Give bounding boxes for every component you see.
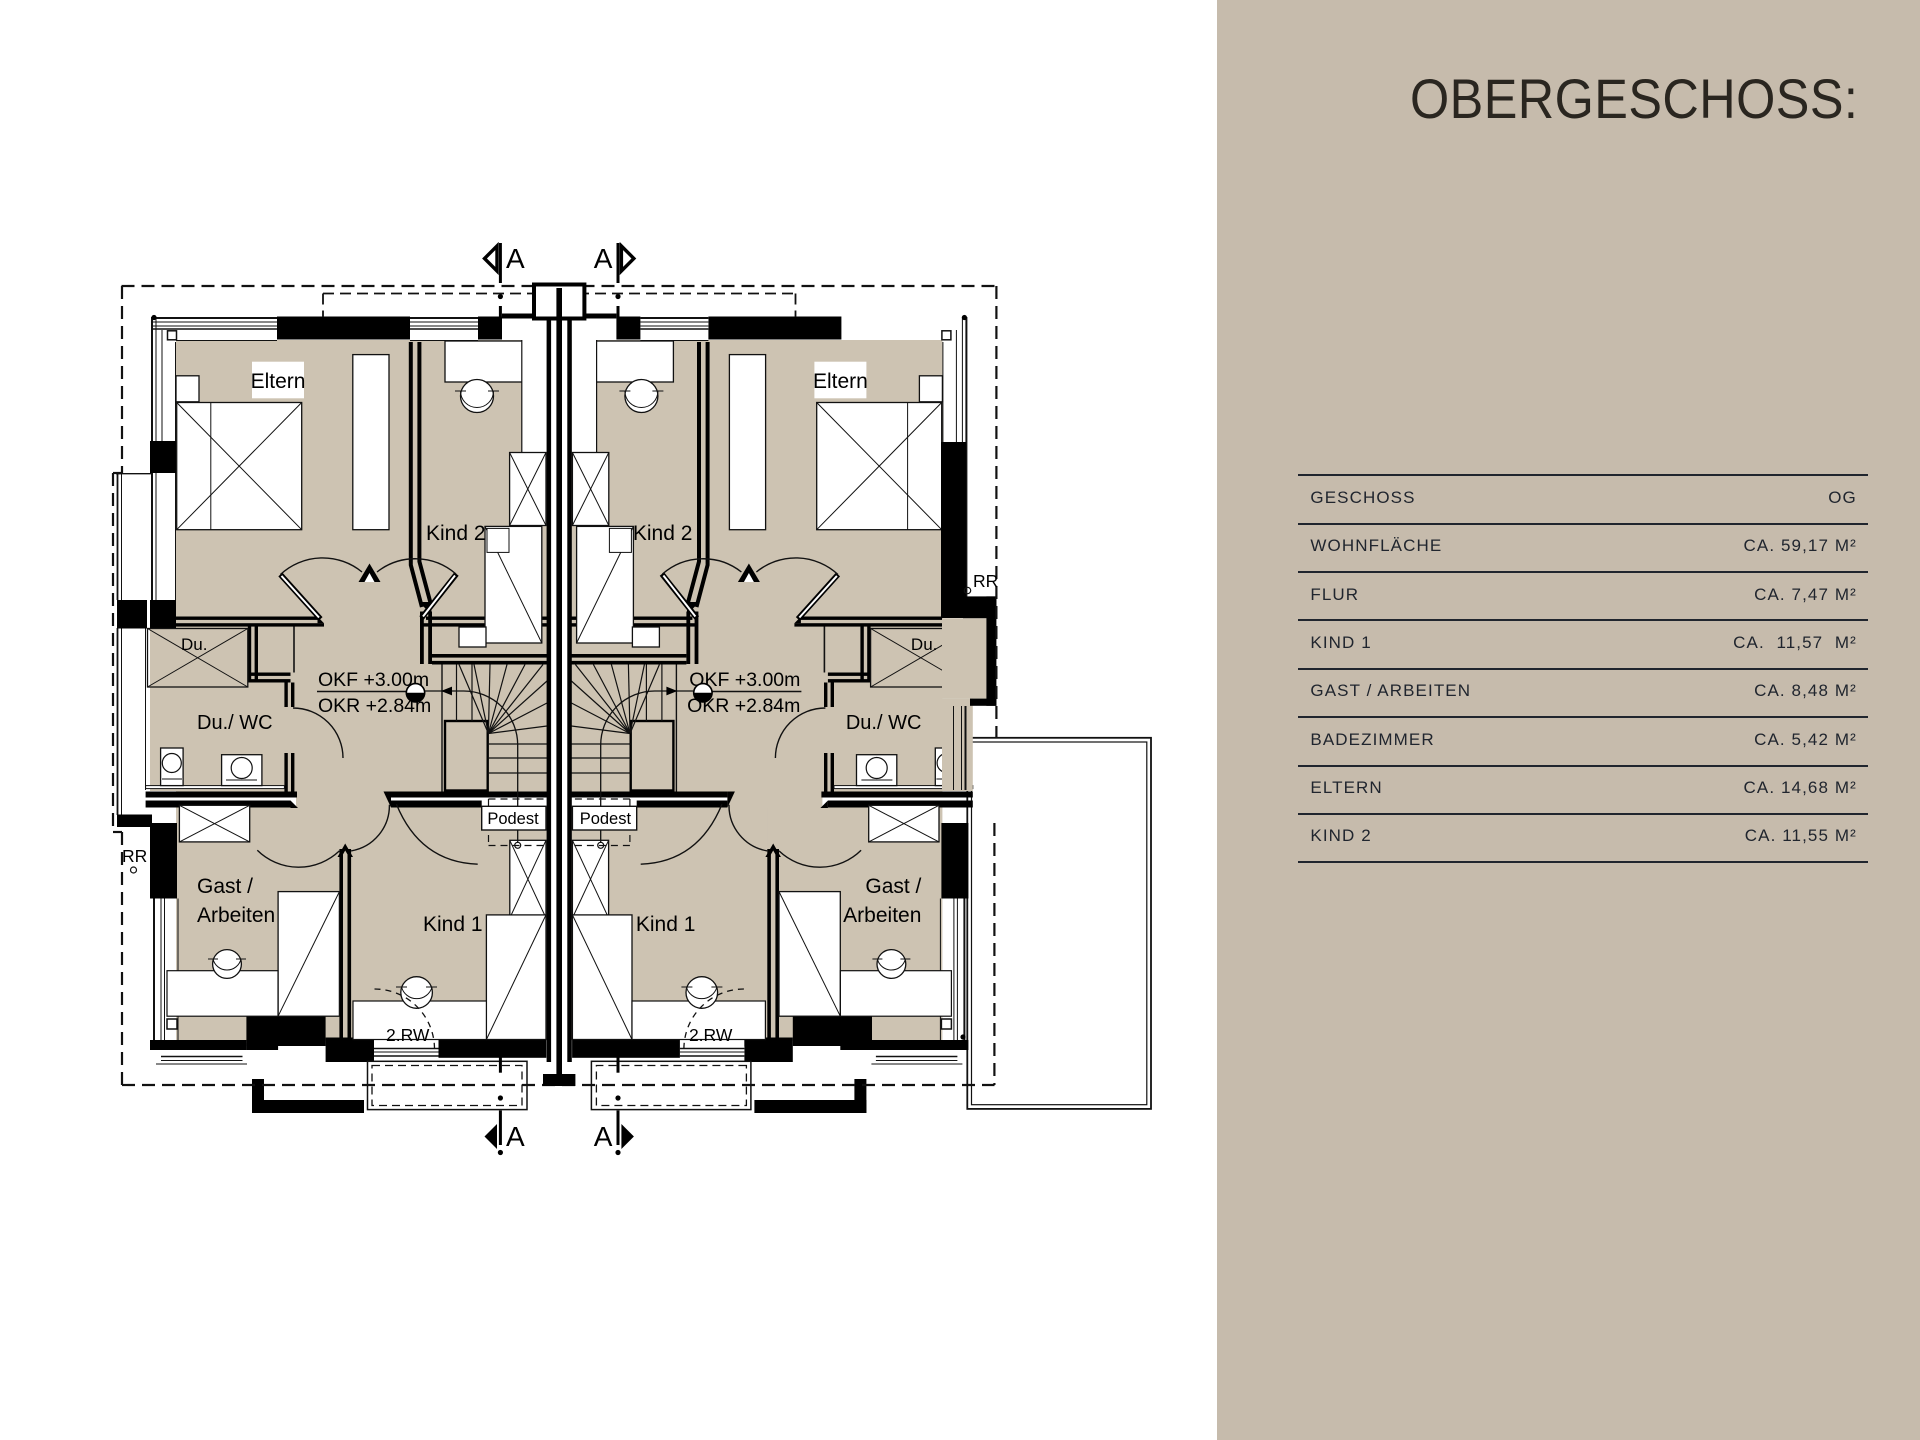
svg-text:Kind 1: Kind 1 xyxy=(423,913,483,936)
svg-text:Du.: Du. xyxy=(911,635,937,654)
svg-text:Podest: Podest xyxy=(580,810,632,828)
svg-text:A: A xyxy=(506,1121,525,1152)
svg-text:A: A xyxy=(594,1121,613,1152)
svg-text:Gast /: Gast / xyxy=(865,875,921,898)
svg-text:2.RW: 2.RW xyxy=(386,1025,430,1045)
svg-text:Eltern: Eltern xyxy=(813,370,868,393)
svg-text:2.RW: 2.RW xyxy=(689,1025,733,1045)
svg-text:Arbeiten: Arbeiten xyxy=(843,904,921,927)
svg-text:A: A xyxy=(594,243,613,274)
svg-text:Kind 2: Kind 2 xyxy=(426,522,486,545)
svg-text:RR: RR xyxy=(122,846,147,866)
svg-text:A: A xyxy=(506,243,525,274)
svg-text:Podest: Podest xyxy=(487,810,539,828)
svg-text:Du./ WC: Du./ WC xyxy=(846,712,922,734)
svg-text:Du./ WC: Du./ WC xyxy=(197,712,273,734)
svg-text:RR: RR xyxy=(973,571,998,591)
svg-text:Du.: Du. xyxy=(181,635,207,654)
svg-text:Gast /: Gast / xyxy=(197,875,253,898)
svg-text:Eltern: Eltern xyxy=(251,370,306,393)
svg-text:Arbeiten: Arbeiten xyxy=(197,904,275,927)
svg-text:Kind 1: Kind 1 xyxy=(636,913,696,936)
svg-text:Kind 2: Kind 2 xyxy=(633,522,693,545)
